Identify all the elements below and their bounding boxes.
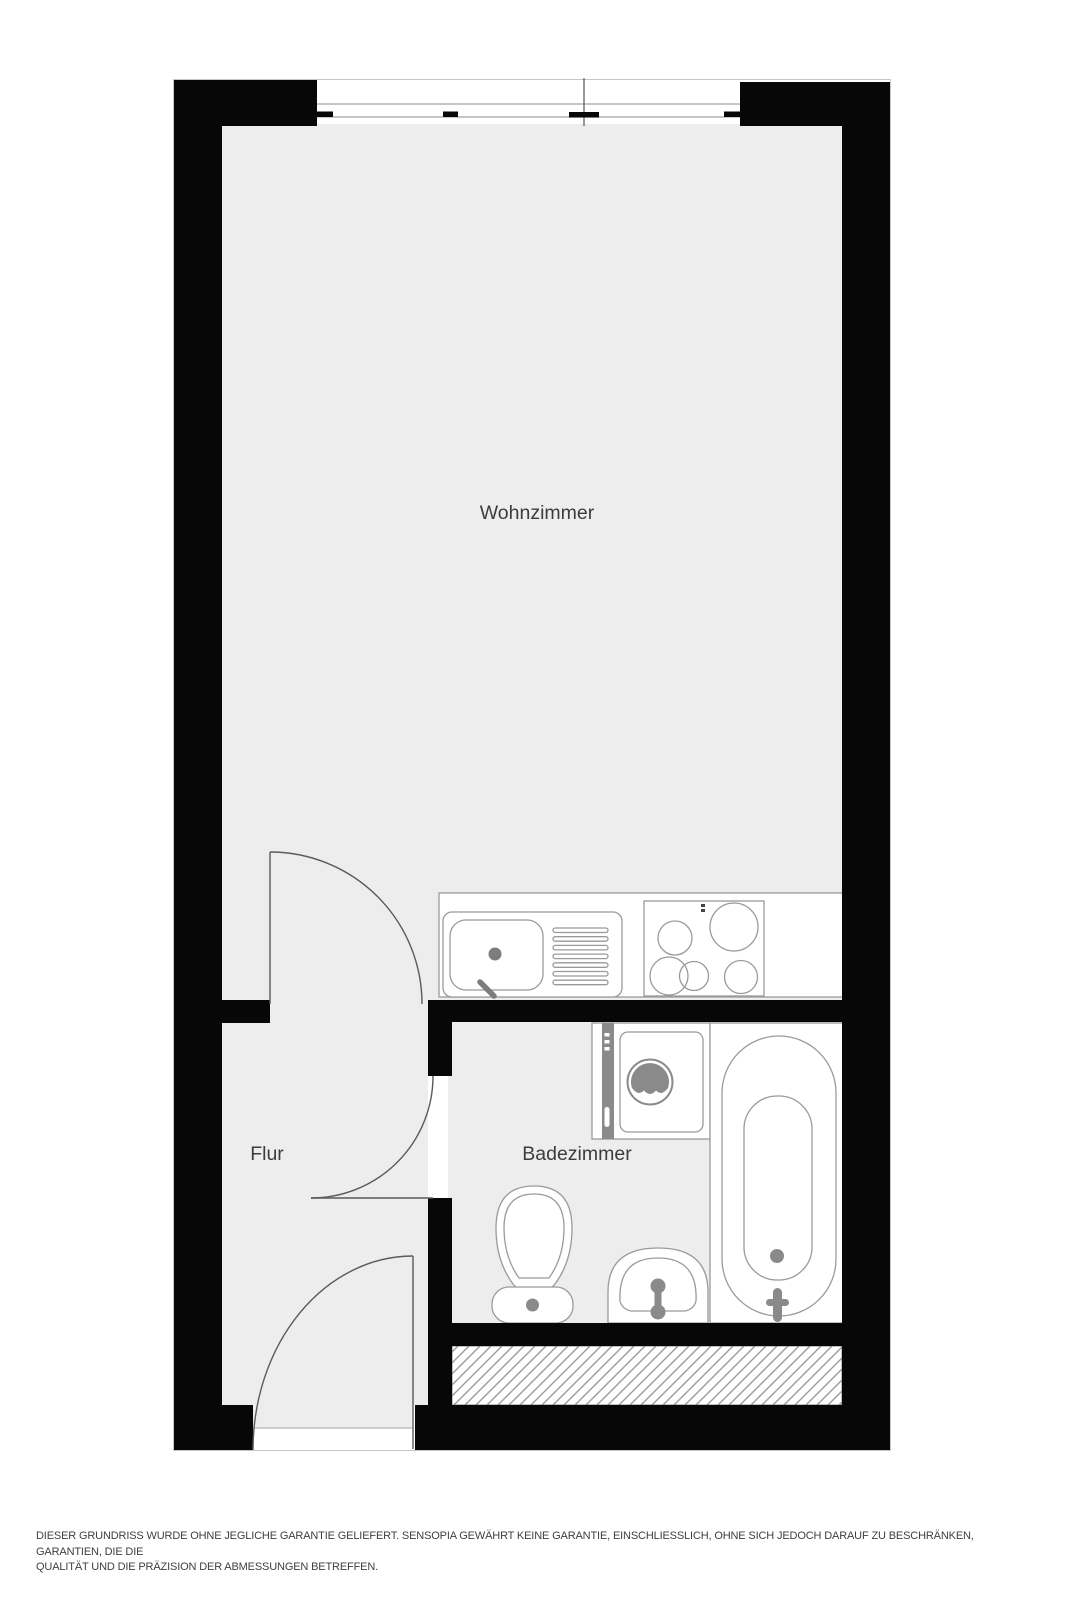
disclaimer-line-1: DIESER GRUNDRISS WURDE OHNE JEGLICHE GAR… [36, 1529, 1036, 1560]
bathtub-faucet-handle [766, 1299, 789, 1306]
toilet-flush-button [526, 1299, 539, 1312]
bathroom-label: Badezimmer [522, 1143, 632, 1165]
living-room-floor [222, 124, 843, 1000]
wall-right [842, 82, 890, 1450]
living-room-label: Wohnzimmer [480, 502, 595, 524]
wall-divider-upper [428, 1022, 452, 1076]
wall-left [174, 80, 222, 1450]
burner-large [710, 903, 758, 951]
bathtub [710, 1023, 843, 1323]
window [317, 78, 740, 126]
disclaimer-line-2: QUALITÄT UND DIE PRÄZISION DER ABMESSUNG… [36, 1560, 1036, 1576]
cooktop-control-mark [701, 904, 705, 907]
disclaimer: DIESER GRUNDRISS WURDE OHNE JEGLICHE GAR… [36, 1529, 1036, 1576]
washing-machine [592, 1023, 710, 1139]
washbasin [608, 1248, 708, 1323]
wall-hatch-left [428, 1346, 452, 1405]
toilet-bowl [496, 1186, 572, 1290]
floor-plan-page: Wohnzimmer Flur Badezimmer DIESER GRUNDR… [0, 0, 1067, 1600]
toilet [492, 1186, 573, 1323]
wall-bottom-right [415, 1405, 890, 1450]
living-room-door-opening [268, 1000, 430, 1024]
wall-interior-under-counter [428, 1000, 842, 1022]
kitchen-counter [439, 893, 843, 997]
drainboard [553, 928, 608, 985]
burner-medium [725, 961, 758, 994]
cooktop-control-mark [701, 909, 705, 912]
cooktop [644, 901, 764, 996]
hallway-label: Flur [250, 1143, 284, 1165]
wall-interior-left [222, 1000, 270, 1023]
burner-small [658, 921, 692, 955]
wall-under-bathroom [428, 1323, 842, 1346]
hatched-area [452, 1346, 842, 1405]
kitchen-sink [443, 912, 622, 997]
entrance-threshold [253, 1405, 412, 1428]
bathtub-drain [770, 1249, 784, 1263]
burner-double-a [650, 957, 688, 995]
wall-bottom-left [174, 1405, 253, 1450]
floor-plan-drawing: Wohnzimmer Flur Badezimmer [0, 0, 1067, 1600]
hallway-floor [222, 1023, 428, 1405]
faucet-dot [489, 948, 502, 961]
